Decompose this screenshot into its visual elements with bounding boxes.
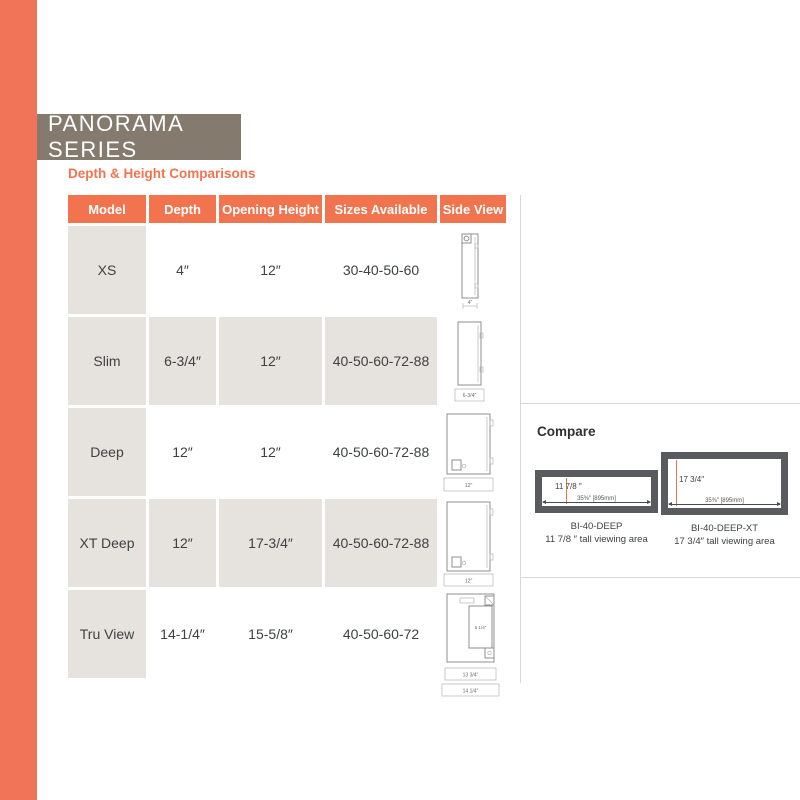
table-row: Slim 6-3/4″ 12″ 40-50-60-72-88 6-3/4″	[68, 317, 506, 405]
sizes-cell: 40-50-60-72-88	[325, 499, 437, 587]
table-row: XS 4″ 12″ 30-40-50-60 4″	[68, 226, 506, 314]
sizes-cell: 40-50-60-72-88	[325, 408, 437, 496]
fireplace-opening: 11 7/8 ″ 35⅜″ [895mm]	[542, 477, 651, 506]
spec-table: Model Depth Opening Height Sizes Availab…	[68, 195, 506, 681]
fireplace-frame: 11 7/8 ″ 35⅜″ [895mm]	[535, 470, 658, 513]
side-view-drawing-xs: 4″	[440, 226, 506, 314]
depth-cell: 4″	[149, 226, 216, 314]
horizontal-divider-bottom	[521, 577, 800, 578]
sizes-cell: 40-50-60-72	[325, 590, 437, 678]
side-dim-label: 6-3/4″	[463, 393, 477, 399]
header-opening-height: Opening Height	[219, 195, 322, 223]
series-title-banner: PANORAMA SERIES	[37, 114, 241, 160]
opening-height-cell: 12″	[219, 226, 322, 314]
depth-cell: 14-1/4″	[149, 590, 216, 678]
unit-caption-text: 17 3/4″ tall viewing area	[661, 535, 788, 548]
compare-heading: Compare	[537, 424, 596, 439]
model-cell: Deep	[68, 408, 146, 496]
side-view-drawing-slim: 6-3/4″	[440, 317, 506, 405]
side-view-drawing-deep: 12″	[440, 408, 506, 496]
page-title: PANORAMA SERIES	[48, 111, 241, 163]
compare-unit-bi-40-deep: 11 7/8 ″ 35⅜″ [895mm] BI-40-DEEP 11 7/8 …	[535, 470, 658, 547]
compare-unit-bi-40-deep-xt: 17 3/4″ 35⅜″ [895mm] BI-40-DEEP-XT 17 3/…	[661, 452, 788, 549]
fireplace-frame: 17 3/4″ 35⅜″ [895mm]	[661, 452, 788, 515]
side-dim-inner-label: 5 1/4″	[475, 625, 487, 630]
model-cell: XS	[68, 226, 146, 314]
table-row: Tru View 14-1/4″ 15-5/8″ 40-50-60-72 5 1…	[68, 590, 506, 678]
unit-caption-text: 11 7/8 ″ tall viewing area	[535, 533, 658, 546]
header-model: Model	[68, 195, 146, 223]
side-dim-label: 4″	[468, 300, 473, 306]
viewing-height-label: 11 7/8 ″	[555, 482, 582, 491]
side-dim-label-1: 13 3/4″	[463, 673, 479, 679]
model-cell: XT Deep	[68, 499, 146, 587]
unit-model-name: BI-40-DEEP	[535, 520, 658, 533]
side-view-drawing-tru-view: 5 1/4″ 13 3/4″ 14 1/4″	[440, 590, 506, 678]
fireplace-opening: 17 3/4″ 35⅜″ [895mm]	[668, 459, 781, 508]
sizes-cell: 30-40-50-60	[325, 226, 437, 314]
opening-height-cell: 12″	[219, 408, 322, 496]
depth-cell: 12″	[149, 408, 216, 496]
side-dim-label: 12″	[465, 579, 473, 585]
viewing-height-label: 17 3/4″	[679, 475, 704, 484]
horizontal-divider-top	[521, 403, 800, 404]
depth-cell: 12″	[149, 499, 216, 587]
side-dim-label: 12″	[465, 483, 473, 489]
width-dimension-arrow	[669, 504, 780, 505]
vertical-divider	[520, 195, 521, 683]
table-header-row: Model Depth Opening Height Sizes Availab…	[68, 195, 506, 223]
side-dim-label-2: 14 1/4″	[463, 689, 479, 695]
model-cell: Slim	[68, 317, 146, 405]
opening-height-cell: 17-3/4″	[219, 499, 322, 587]
depth-cell: 6-3/4″	[149, 317, 216, 405]
opening-height-cell: 15-5/8″	[219, 590, 322, 678]
header-side-view: Side View	[440, 195, 506, 223]
section-subtitle: Depth & Height Comparisons	[68, 166, 256, 181]
model-cell: Tru View	[68, 590, 146, 678]
opening-height-cell: 12″	[219, 317, 322, 405]
table-row: Deep 12″ 12″ 40-50-60-72-88 12″	[68, 408, 506, 496]
unit-model-name: BI-40-DEEP-XT	[661, 522, 788, 535]
header-depth: Depth	[149, 195, 216, 223]
side-view-drawing-xt-deep: 12″	[440, 499, 506, 587]
header-sizes-available: Sizes Available	[325, 195, 437, 223]
table-row: XT Deep 12″ 17-3/4″ 40-50-60-72-88 12″	[68, 499, 506, 587]
sizes-cell: 40-50-60-72-88	[325, 317, 437, 405]
left-accent-bar	[0, 0, 37, 800]
width-dimension-arrow	[543, 502, 650, 503]
